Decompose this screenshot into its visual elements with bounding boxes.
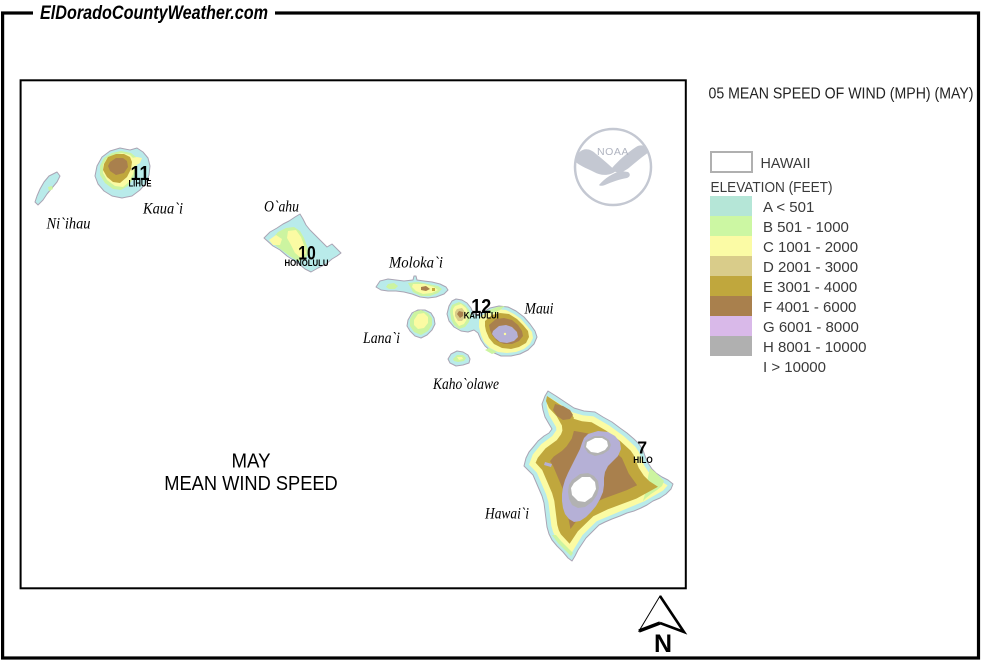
svg-text:Kaho`olawe: Kaho`olawe	[432, 376, 499, 393]
svg-text:I > 10000: I > 10000	[763, 359, 826, 376]
svg-text:LIHUE: LIHUE	[129, 179, 152, 190]
svg-text:Ni`ihau: Ni`ihau	[46, 216, 91, 233]
svg-text:Moloka`i: Moloka`i	[388, 255, 443, 272]
svg-text:Maui: Maui	[524, 301, 554, 318]
svg-text:Kaua`i: Kaua`i	[142, 201, 183, 218]
svg-text:E 3001 - 4000: E 3001 - 4000	[763, 279, 857, 296]
svg-text:HONOLULU: HONOLULU	[285, 258, 329, 269]
svg-text:H 8001 - 10000: H 8001 - 10000	[763, 339, 866, 356]
svg-text:D 2001 - 3000: D 2001 - 3000	[763, 259, 858, 276]
svg-text:F 4001 - 6000: F 4001 - 6000	[763, 299, 856, 316]
svg-text:ELEVATION (FEET): ELEVATION (FEET)	[711, 179, 833, 196]
svg-text:NOAA: NOAA	[597, 146, 629, 158]
svg-text:B 501 - 1000: B 501 - 1000	[763, 219, 849, 236]
svg-text:G 6001 - 8000: G 6001 - 8000	[763, 319, 859, 336]
svg-text:C 1001 - 2000: C 1001 - 2000	[763, 239, 858, 256]
svg-text:O`ahu: O`ahu	[264, 199, 299, 216]
svg-text:HILO: HILO	[633, 455, 653, 466]
svg-text:Hawai`i: Hawai`i	[484, 506, 529, 523]
svg-text:MEAN WIND SPEED: MEAN WIND SPEED	[164, 473, 338, 495]
svg-text:HAWAII: HAWAII	[761, 155, 811, 172]
svg-text:05 MEAN SPEED OF WIND (MPH) (M: 05 MEAN SPEED OF WIND (MPH) (MAY)	[709, 86, 974, 103]
svg-text:MAY: MAY	[232, 451, 271, 473]
svg-text:Lana`i: Lana`i	[362, 330, 400, 347]
svg-text:A < 501: A < 501	[763, 199, 814, 216]
svg-text:ElDoradoCountyWeather.com: ElDoradoCountyWeather.com	[40, 3, 268, 24]
svg-text:KAHULUI: KAHULUI	[464, 311, 499, 322]
svg-text:N: N	[654, 630, 672, 658]
